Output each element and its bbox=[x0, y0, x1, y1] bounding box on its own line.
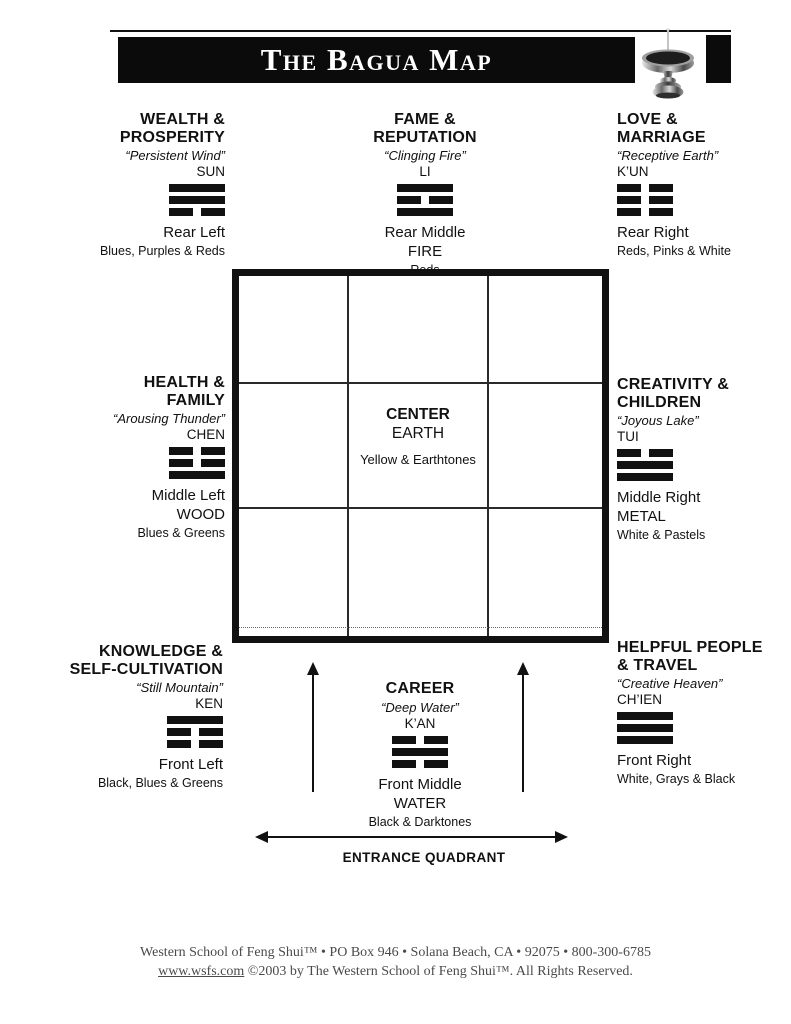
center-title: CENTER bbox=[349, 406, 487, 424]
section-title: FAME & REPUTATION bbox=[373, 111, 477, 146]
section-title: HELPFUL PEOPLE & TRAVEL bbox=[617, 639, 763, 674]
up-arrow-icon bbox=[516, 662, 530, 792]
trigram-chen-icon bbox=[169, 447, 225, 479]
section-colors: Reds, Pinks & White bbox=[617, 243, 731, 259]
trigram-name: CH’IEN bbox=[617, 692, 662, 707]
section-colors: Black, Blues & Greens bbox=[98, 775, 223, 791]
section-quote: “Creative Heaven” bbox=[617, 676, 723, 691]
section-colors: White, Grays & Black bbox=[617, 771, 735, 787]
trigram-name: K’AN bbox=[405, 716, 436, 731]
section-position: Middle Right bbox=[617, 489, 700, 507]
up-arrow-icon bbox=[306, 662, 320, 792]
section-title: WEALTH & PROSPERITY bbox=[120, 111, 225, 146]
section-wealth-prosperity: WEALTH & PROSPERITY “Persistent Wind” SU… bbox=[100, 111, 225, 259]
trigram-name: TUI bbox=[617, 429, 639, 444]
section-title: KNOWLEDGE & SELF-CULTIVATION bbox=[70, 643, 223, 678]
banner-end-block bbox=[706, 35, 731, 83]
trigram-tui-icon bbox=[617, 449, 673, 481]
trigram-ken-icon bbox=[167, 716, 223, 748]
section-colors: Blues & Greens bbox=[137, 525, 225, 541]
trigram-name: LI bbox=[419, 164, 430, 179]
section-quote: “Receptive Earth” bbox=[617, 148, 718, 163]
trigram-kan-icon bbox=[392, 736, 448, 768]
section-creativity-children: CREATIVITY & CHILDREN “Joyous Lake” TUI … bbox=[617, 376, 729, 543]
section-position: Front Right bbox=[617, 752, 691, 770]
entrance-quadrant-label: ENTRANCE QUADRANT bbox=[274, 850, 574, 865]
page-title: The Bagua Map bbox=[118, 37, 635, 82]
trigram-kun-icon bbox=[617, 184, 673, 216]
section-element: WOOD bbox=[177, 505, 225, 524]
grid-vertical-line bbox=[487, 276, 489, 636]
section-title: LOVE & MARRIAGE bbox=[617, 111, 706, 146]
section-element: METAL bbox=[617, 507, 666, 526]
section-fame-reputation: FAME & REPUTATION “Clinging Fire” LI Rea… bbox=[275, 111, 575, 278]
section-title: CREATIVITY & CHILDREN bbox=[617, 376, 729, 411]
fountain-photo bbox=[636, 28, 700, 104]
grid-horizontal-line bbox=[239, 507, 602, 509]
trigram-sun-icon bbox=[169, 184, 225, 216]
section-quote: “Arousing Thunder” bbox=[113, 411, 225, 426]
section-helpful-people-travel: HELPFUL PEOPLE & TRAVEL “Creative Heaven… bbox=[617, 639, 763, 787]
trigram-chien-icon bbox=[617, 712, 673, 744]
entrance-double-arrow-icon bbox=[255, 830, 568, 844]
center-colors: Yellow & Earthtones bbox=[349, 452, 487, 467]
section-position: Middle Left bbox=[152, 487, 225, 505]
section-center: CENTER EARTH Yellow & Earthtones bbox=[349, 406, 487, 467]
section-element: WATER bbox=[394, 794, 447, 813]
title-banner: The Bagua Map bbox=[118, 37, 635, 83]
trigram-name: KEN bbox=[195, 696, 223, 711]
footer-website-link[interactable]: www.wsfs.com bbox=[158, 964, 244, 979]
trigram-name: CHEN bbox=[187, 427, 225, 442]
trigram-name: SUN bbox=[196, 164, 225, 179]
section-quote: “Persistent Wind” bbox=[125, 148, 225, 163]
trigram-name: K’UN bbox=[617, 164, 649, 179]
section-quote: “Clinging Fire” bbox=[384, 148, 466, 163]
bagua-grid: CENTER EARTH Yellow & Earthtones bbox=[232, 269, 609, 643]
entrance-dotted-line bbox=[239, 627, 602, 628]
center-element: EARTH bbox=[349, 424, 487, 443]
section-love-marriage: LOVE & MARRIAGE “Receptive Earth” K’UN R… bbox=[617, 111, 731, 259]
section-title: CAREER bbox=[386, 680, 455, 698]
section-health-family: HEALTH & FAMILY “Arousing Thunder” CHEN … bbox=[113, 374, 225, 541]
footer-address-line: Western School of Feng Shui™ • PO Box 94… bbox=[140, 945, 651, 960]
section-title: HEALTH & FAMILY bbox=[144, 374, 225, 409]
bagua-map-page: The Bagua Map WEALTH & PROSPERITY “Persi bbox=[0, 0, 791, 1024]
section-element: FIRE bbox=[408, 242, 442, 261]
footer-copyright-line: ©2003 by The Western School of Feng Shui… bbox=[248, 964, 633, 979]
section-position: Rear Left bbox=[163, 224, 225, 242]
section-quote: “Still Mountain” bbox=[136, 680, 223, 695]
section-quote: “Joyous Lake” bbox=[617, 413, 699, 428]
section-colors: Blues, Purples & Reds bbox=[100, 243, 225, 259]
section-position: Rear Middle bbox=[385, 224, 466, 242]
section-colors: White & Pastels bbox=[617, 527, 705, 543]
section-quote: “Deep Water” bbox=[381, 700, 459, 715]
section-knowledge-selfcultivation: KNOWLEDGE & SELF-CULTIVATION “Still Moun… bbox=[70, 643, 223, 791]
footer: Western School of Feng Shui™ • PO Box 94… bbox=[0, 943, 791, 981]
section-position: Rear Right bbox=[617, 224, 689, 242]
section-position: Front Left bbox=[159, 756, 223, 774]
grid-horizontal-line bbox=[239, 382, 602, 384]
trigram-li-icon bbox=[397, 184, 453, 216]
section-colors: Black & Darktones bbox=[369, 814, 472, 830]
section-position: Front Middle bbox=[378, 776, 461, 794]
